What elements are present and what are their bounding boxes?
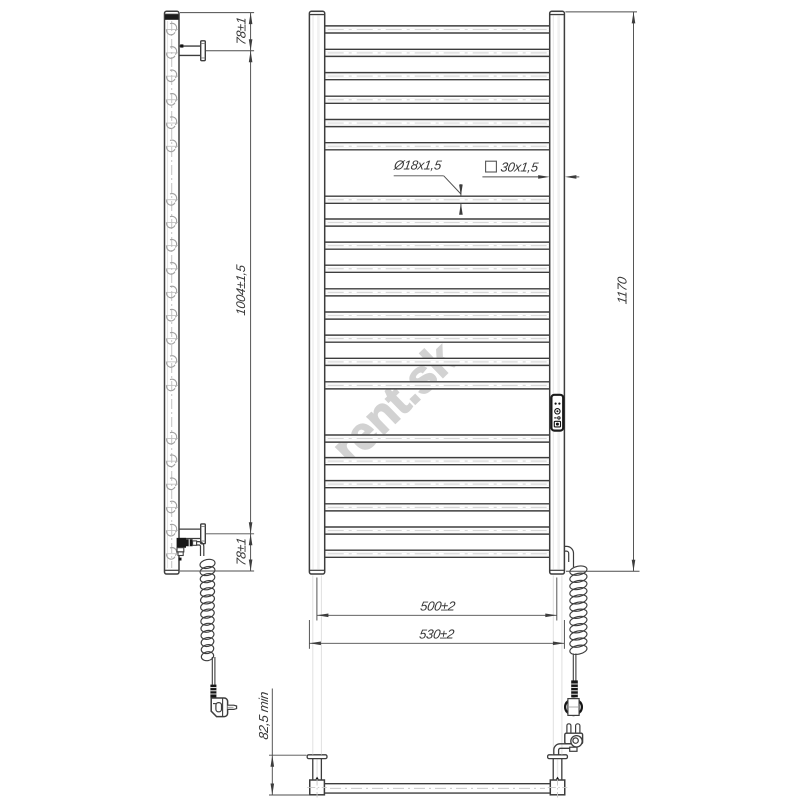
svg-text:30x1,5: 30x1,5 xyxy=(500,159,540,174)
svg-text:Ø18x1,5: Ø18x1,5 xyxy=(392,158,443,173)
svg-text:1170: 1170 xyxy=(615,275,630,305)
svg-text:530±2: 530±2 xyxy=(418,626,456,641)
svg-text:82,5 min: 82,5 min xyxy=(256,691,271,741)
svg-text:78±1: 78±1 xyxy=(233,537,248,567)
svg-text:500±2: 500±2 xyxy=(419,598,457,613)
svg-text:78±1: 78±1 xyxy=(233,16,248,46)
svg-text:1004±1,5: 1004±1,5 xyxy=(234,263,248,316)
